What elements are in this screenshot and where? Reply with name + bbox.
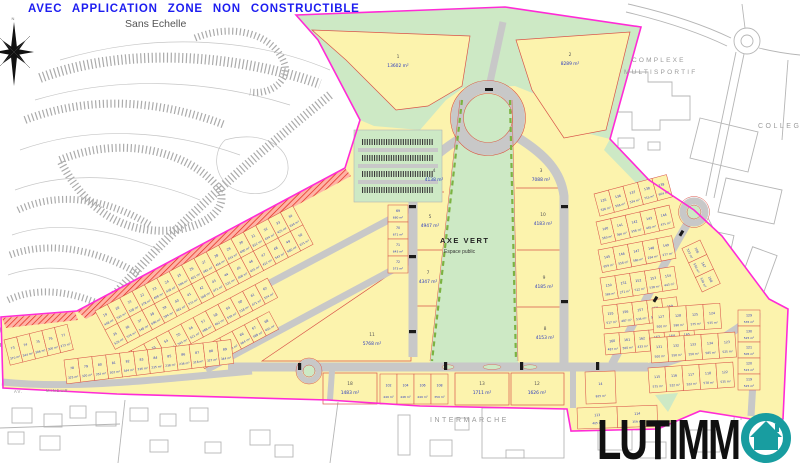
parcel-cell [604,333,621,355]
parcel-label: 590 m² [673,323,684,328]
parcel-label: 118 [705,371,711,375]
parcel-label: 573 m² [393,267,403,271]
parcel-label: 88 [209,349,214,353]
parcel-label: 85 [167,354,172,358]
parcel-label: 155 [607,311,614,316]
parcel-label: 4138 m² [425,177,444,183]
parcel-label: 575 m² [690,322,701,327]
parcel-label: 525 m² [744,336,754,340]
parcel-label: 70 [396,226,400,230]
parcel-label: 133 [690,342,696,346]
scale-note: Sans Echelle [125,18,186,30]
parcel-cell [659,266,677,291]
parcel-row: 102449 m²104448 m²106449 m²108359 m² [380,374,448,404]
college-label: COLLEGE [758,123,800,130]
parcel-label: 7088 m² [532,177,551,183]
parcel-label: 449 m² [417,395,427,399]
parcel-cell [617,302,635,327]
parcel-label: 10 [540,212,546,218]
parcel-label: 117 [688,372,694,376]
parcel-label: 128 [675,313,681,317]
parcel-label: 550 m² [688,352,699,357]
parcel-label: 18 [347,381,353,387]
parcel-label: 162 [639,336,645,341]
parcel-label: 157 [637,308,644,313]
parcel-label: 130 [746,330,752,334]
parcel-label: 13 [479,381,485,387]
parcel-label: 4947 m² [421,223,440,229]
parcel-label: 1711 m² [473,390,492,396]
parcel-label: 120 [746,362,752,366]
street-prefix-label: AV. [14,389,23,394]
parcel-label: 89 [223,347,228,351]
parking-lot [354,130,442,202]
parcel-row: 129535 m²130525 m²121505 m²120515 m²1195… [738,310,760,390]
parcel-cell [414,374,431,404]
parcel-label: 12 [534,381,540,387]
parcel-label: 535 m² [720,379,731,384]
parcel-cell [665,366,684,392]
parcel-label: 123 [724,340,730,344]
parcel-label: 119 [746,378,752,382]
parcel-label: 505 m² [744,352,754,356]
parcel-label: 522 m² [669,383,680,388]
complexe-label-1: COMPLEXE [632,57,686,64]
parcel-label: 9 [543,275,546,281]
parcel-label: 535 m² [744,320,754,324]
parcel-label: 102 [385,384,391,388]
parcel-label: 500 m² [654,354,665,359]
parcel-cell [650,337,669,363]
parcel-cell [632,301,650,326]
parcel-label: 106 [419,384,425,388]
compass-rose: N [0,16,34,86]
parcel-label: 4185 m² [535,284,554,290]
parcel-label: 122 [722,370,728,374]
parcel-label: 11 [369,332,375,338]
parcel-label: 87 [195,351,200,355]
page-title: AVEC APPLICATION ZONE NON CONSTRUCTIBLE [28,3,360,15]
parcel-label: 115 [654,375,660,379]
parcel-label: 161 [624,338,630,343]
parcel-label: 108 [436,384,442,388]
parcel-label: 578 m² [703,380,714,385]
parcel-label: 83 [139,357,144,361]
parcel-label: 680 m² [393,216,403,220]
parcel-label: 81 [111,361,116,365]
parcel-row: 14825 m² [585,371,616,404]
parcel-label: 84 [153,356,158,360]
parcel-label: 1 [397,54,400,60]
parcel-label: 5 [429,214,432,220]
parcel-label: 104 [402,384,408,388]
parcel-label: 2 [569,52,572,58]
parcel-label: 1483 m² [341,390,360,396]
parcel-label: 116 [671,373,677,377]
parcel-label: 575 m² [652,384,663,389]
parcel-label: 131 [656,345,662,349]
lutimmo-logo: LUTIMM [597,408,787,463]
parcel-row: 69680 m²70671 m²71643 m²72573 m² [388,205,408,273]
parcel-label: 535 m² [707,320,718,325]
parcel-label: 71 [396,243,400,247]
compass-north-label: N [12,16,15,21]
parcel-label: 449 m² [383,395,393,399]
subdivision-plan: 19448 m²20522 m²21538 m²22378 m²23408 m²… [0,0,800,463]
parcel-label: 525 m² [744,384,754,388]
parcel-cell [716,362,735,388]
parcel-label: 3 [540,168,543,174]
parcel-label: 4183 m² [534,221,553,227]
parcel-label: 124 [709,311,715,315]
parcel-label: 359 m² [434,395,444,399]
parcel-label: 5768 m² [363,341,382,347]
parcel-cell [682,364,701,390]
parcel-label: 643 m² [393,250,403,254]
parcel-label: 4 [433,168,436,174]
parcel-label: 127 [658,315,664,319]
parcel-label: 500 m² [656,324,667,329]
axe-vert-sublabel: Espace public [444,249,476,255]
parcel-label: 825 m² [596,394,607,398]
parcel-cell [703,303,722,329]
parcel-label: 78 [70,366,75,370]
parcel-label: 79 [84,364,89,368]
parcel-cell [585,371,616,404]
logo-text: LUTIMM [597,408,739,463]
parcel-label: 156 [622,309,629,314]
parcel-label: 515 m² [744,368,754,372]
parcel-cell [667,336,686,362]
parcel-label: 4153 m² [536,335,555,341]
parcel-cell [701,333,720,359]
parcel-cell [648,367,667,393]
parcel-label: 86 [181,352,186,356]
house-in-circle-icon [745,417,787,459]
parcel-label: 14 [598,382,602,386]
parcel-label: 134 [707,341,713,345]
parcel-label: 525 m² [722,349,733,354]
parcel-cell [397,374,414,404]
parcel-label: 7 [427,270,430,276]
parcel-label: 13602 m² [387,63,409,69]
parcel-label: 160 [609,339,615,344]
parcel-label: 448 m² [400,395,410,399]
street-name-label: MINEUR [46,388,69,393]
parcel-cell [602,304,620,329]
parcel-cell [699,363,718,389]
parcel-label: 550 m² [671,353,682,358]
parcel-label: 671 m² [393,233,403,237]
parcel-cell [634,330,651,352]
parcel-label: 8289 m² [561,61,580,67]
parcel-label: 121 [746,346,752,350]
complexe-label-2: MULTISPORTIF [624,69,697,76]
parcel-label: 82 [125,359,130,363]
parcel-label: 8 [544,326,547,332]
parcel-cell [669,306,688,332]
parcel-label: 132 [673,343,679,347]
parcel-cell [652,307,671,333]
parcel-label: 4347 m² [419,279,438,285]
parcel-label: 1626 m² [528,390,547,396]
axe-vert-label: AXE VERT [440,236,490,245]
parcel-cell [686,304,705,330]
parcel-row: 127500 m²128590 m²125575 m²124535 m² [652,303,722,333]
parcel-label: 80 [98,363,103,367]
parcel-label: 522 m² [686,382,697,387]
parcel-cell [217,340,234,366]
parcel-label: 72 [396,260,400,264]
parcel-cell [619,331,636,353]
parcel-cell [380,374,397,404]
parcel-cell [684,334,703,360]
parcel-label: 69 [396,209,400,213]
parcel-label: 125 [692,312,698,316]
parcel-label: 129 [746,314,752,318]
parcel-label: 585 m² [705,350,716,355]
intermarche-label: INTERMARCHE [430,417,509,424]
parcel-cell [431,374,448,404]
parcel-cell [718,332,737,358]
